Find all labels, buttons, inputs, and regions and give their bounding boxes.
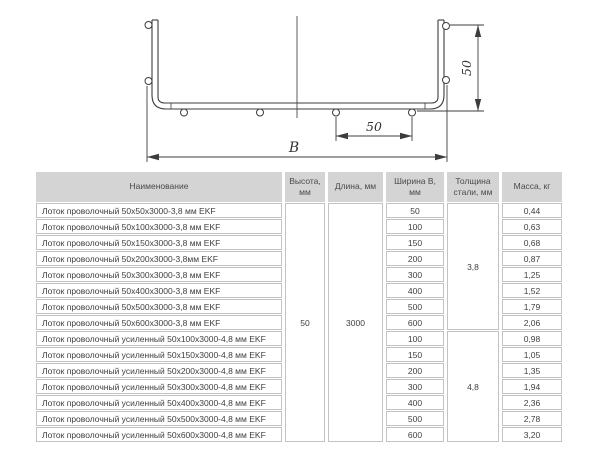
header-thickness: Толщина стали, мм [447,172,499,202]
product-name: Лоток проволочный усиленный 50x600x3000-… [36,427,282,442]
mass-value: 0,44 [502,203,562,218]
product-name: Лоток проволочный усиленный 50x300x3000-… [36,379,282,394]
product-name: Лоток проволочный 50x200x3000-3,8мм EKF [36,251,282,266]
width-value: 500 [386,299,444,314]
thickness-standard-value: 3,8 [447,203,499,330]
mass-value: 0,87 [502,251,562,266]
dimension-pitch-label: 50 [366,119,382,134]
width-value: 50 [386,203,444,218]
width-value: 600 [386,427,444,442]
table-header: Наименование Высота, мм Длина, мм Ширина… [36,172,562,202]
mass-value: 2,06 [502,315,562,330]
product-name: Лоток проволочный усиленный 50x100x3000-… [36,331,282,346]
product-name: Лоток проволочный 50x500x3000-3,8 мм EKF [36,299,282,314]
mass-value: 1,35 [502,363,562,378]
width-value: 300 [386,267,444,282]
mass-value: 3,20 [502,427,562,442]
width-value: 600 [386,315,444,330]
dimension-height-label: 50 [459,60,474,76]
height-value: 50 [285,203,325,442]
width-value: 400 [386,283,444,298]
width-value: 500 [386,411,444,426]
mass-value: 1,05 [502,347,562,362]
mass-value: 1,52 [502,283,562,298]
specification-table: Наименование Высота, мм Длина, мм Ширина… [33,171,565,443]
width-value: 150 [386,235,444,250]
mass-value: 0,68 [502,235,562,250]
thickness-reinforced-value: 4,8 [447,331,499,442]
product-name: Лоток проволочный усиленный 50x500x3000-… [36,411,282,426]
product-name: Лоток проволочный усиленный 50x400x3000-… [36,395,282,410]
header-name: Наименование [36,172,282,202]
tray-profile-outline [152,20,444,109]
tray-cross-section-drawing: B 50 50 [0,0,600,170]
width-value: 200 [386,363,444,378]
product-name: Лоток проволочный 50x400x3000-3,8 мм EKF [36,283,282,298]
width-value: 200 [386,251,444,266]
header-width: Ширина В, мм [386,172,444,202]
dimension-b-label: B [288,140,299,156]
product-name: Лоток проволочный усиленный 50x200x3000-… [36,363,282,378]
mass-value: 1,79 [502,299,562,314]
header-length: Длина, мм [328,172,383,202]
width-value: 400 [386,395,444,410]
product-name: Лоток проволочный 50x150x3000-3,8 мм EKF [36,235,282,250]
table-body: Лоток проволочный 50x50x3000-3,8 мм EKF … [36,203,562,442]
width-value: 300 [386,379,444,394]
product-name: Лоток проволочный 50x100x3000-3,8 мм EKF [36,219,282,234]
mass-value: 0,63 [502,219,562,234]
header-height: Высота, мм [285,172,325,202]
width-value: 150 [386,347,444,362]
length-value: 3000 [328,203,383,442]
table-row: Лоток проволочный 50x50x3000-3,8 мм EKF … [36,203,562,218]
mass-value: 2,78 [502,411,562,426]
product-name: Лоток проволочный 50x300x3000-3,8 мм EKF [36,267,282,282]
mass-value: 0,98 [502,331,562,346]
width-value: 100 [386,219,444,234]
width-value: 100 [386,331,444,346]
product-name: Лоток проволочный усиленный 50x150x3000-… [36,347,282,362]
product-name: Лоток проволочный 50x50x3000-3,8 мм EKF [36,203,282,218]
tray-drawing-svg: B 50 50 [0,0,600,170]
mass-value: 1,25 [502,267,562,282]
header-mass: Масса, кг [502,172,562,202]
mass-value: 1,94 [502,379,562,394]
product-name: Лоток проволочный 50x600x3000-3,8 мм EKF [36,315,282,330]
mass-value: 2,36 [502,395,562,410]
